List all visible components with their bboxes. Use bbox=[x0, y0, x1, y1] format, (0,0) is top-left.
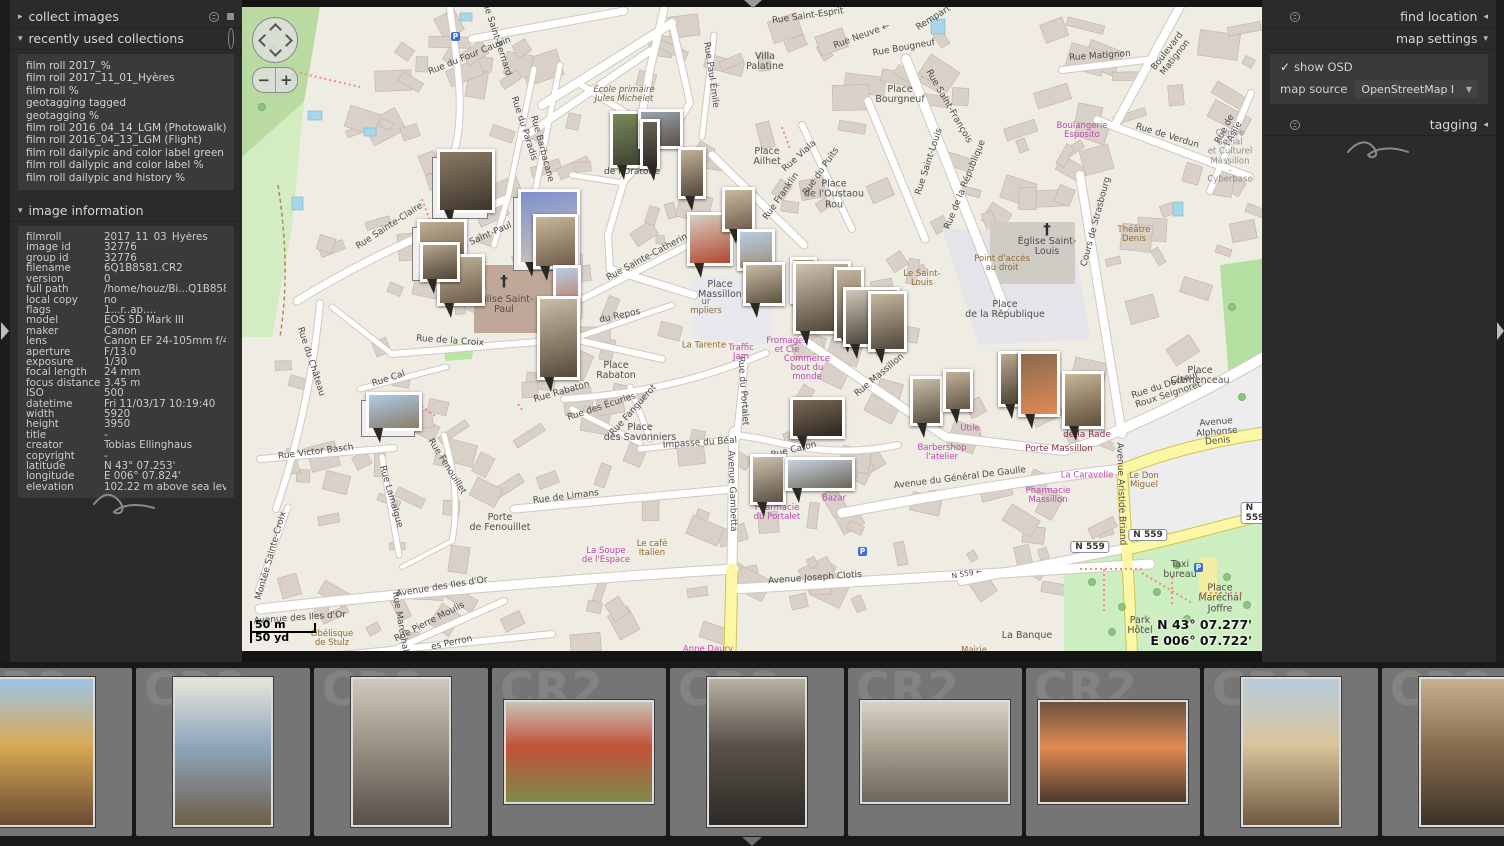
info-value: 500 bbox=[104, 388, 226, 398]
info-value: F/13.0 bbox=[104, 347, 226, 357]
info-value: EOS 5D Mark III bbox=[104, 315, 226, 325]
collect-images-header[interactable]: ▸ collect images bbox=[10, 6, 242, 28]
filmstrip-thumbnail-cell[interactable]: CR2 bbox=[670, 668, 844, 836]
checkbox-checked-icon[interactable]: ✓ bbox=[1280, 60, 1290, 74]
photo-marker[interactable] bbox=[420, 242, 460, 282]
marker-tail bbox=[444, 303, 454, 318]
info-key: aperture bbox=[26, 347, 104, 357]
info-value: - bbox=[104, 451, 226, 461]
pan-right-icon[interactable] bbox=[280, 34, 293, 47]
marker-tail bbox=[757, 502, 767, 517]
collection-item[interactable]: film roll % bbox=[26, 85, 226, 97]
marker-tail bbox=[427, 279, 437, 294]
info-key: datetime bbox=[26, 399, 104, 409]
thumbnail-photo[interactable] bbox=[504, 700, 654, 804]
presets-icon[interactable] bbox=[1290, 120, 1300, 130]
info-key: copyright bbox=[26, 451, 104, 461]
info-key: creator bbox=[26, 440, 104, 450]
collapse-left-panel-arrow[interactable] bbox=[1, 322, 9, 340]
photo-marker[interactable] bbox=[868, 291, 907, 352]
info-value: 24 mm bbox=[104, 367, 226, 377]
info-key: full path bbox=[26, 284, 104, 294]
info-key: lens bbox=[26, 336, 104, 346]
info-key: filename bbox=[26, 263, 104, 273]
photo-marker[interactable] bbox=[910, 376, 943, 426]
info-key: title bbox=[26, 430, 104, 440]
info-value: 1/30 bbox=[104, 357, 226, 367]
photo-marker[interactable] bbox=[943, 369, 973, 412]
info-value: 2017_11_03_Hyères bbox=[104, 232, 226, 242]
church-cross-icon: † bbox=[500, 272, 508, 290]
collection-item[interactable]: film roll 2016_04_14_LGM (Photowalk) bbox=[26, 122, 226, 134]
marker-tail bbox=[1025, 414, 1035, 429]
photo-marker[interactable] bbox=[790, 397, 845, 439]
collection-item[interactable]: film roll dailypic and history % bbox=[26, 172, 226, 184]
find-location-label: find location bbox=[1400, 9, 1477, 24]
photo-marker[interactable] bbox=[678, 147, 706, 199]
info-value: E 006° 07.824' bbox=[104, 471, 226, 481]
info-value: Canon EF 24-105mm f/4L IS bbox=[104, 336, 226, 346]
photo-marker[interactable] bbox=[1018, 351, 1060, 417]
info-value: 32776 bbox=[104, 242, 226, 252]
photo-markers-layer bbox=[242, 7, 1262, 651]
marker-tail bbox=[1005, 404, 1015, 419]
filmstrip-thumbnail-cell[interactable]: CR2 bbox=[0, 668, 132, 836]
marker-tail bbox=[792, 488, 802, 503]
recent-collections-header[interactable]: ▾ recently used collections bbox=[10, 28, 242, 50]
presets-icon[interactable] bbox=[1290, 12, 1300, 22]
photo-marker[interactable] bbox=[750, 454, 786, 505]
thumbnail-photo[interactable] bbox=[1419, 677, 1504, 827]
marker-tail bbox=[950, 409, 960, 424]
info-key: latitude bbox=[26, 461, 104, 471]
filmstrip-thumbnail-cell[interactable]: CR2 bbox=[1382, 668, 1504, 836]
coordinate-longitude: E 006° 07.722' bbox=[1150, 633, 1252, 649]
zoom-out-button[interactable]: − bbox=[253, 68, 275, 92]
info-key: longitude bbox=[26, 471, 104, 481]
filmstrip: CR2CR2CR2CR2CR2CR2CR2CR2CR2 bbox=[0, 662, 1504, 846]
expander-icon: ▾ bbox=[18, 206, 23, 216]
marker-tail bbox=[850, 344, 860, 359]
marker-tail bbox=[685, 196, 695, 211]
zoom-in-button[interactable]: + bbox=[275, 68, 298, 92]
filmstrip-thumbnail-cell[interactable]: CR2 bbox=[848, 668, 1022, 836]
collapse-filmstrip-arrow[interactable] bbox=[742, 837, 762, 846]
thumbnail-photo[interactable] bbox=[0, 677, 95, 827]
marker-tail bbox=[647, 166, 657, 181]
photo-marker[interactable] bbox=[537, 296, 580, 380]
filmstrip-thumbnail-cell[interactable]: CR2 bbox=[492, 668, 666, 836]
marker-tail bbox=[540, 266, 550, 281]
thumbnail-photo[interactable] bbox=[860, 700, 1010, 804]
parking-icon: P bbox=[1194, 563, 1203, 572]
filmstrip-thumbnail-cell[interactable]: CR2 bbox=[136, 668, 310, 836]
info-key: focus distance bbox=[26, 378, 104, 388]
info-key: ISO bbox=[26, 388, 104, 398]
presets-icon[interactable] bbox=[209, 12, 219, 22]
info-key: height bbox=[26, 419, 104, 429]
filmstrip-thumbnail-cell[interactable]: CR2 bbox=[1204, 668, 1378, 836]
expander-icon: ▾ bbox=[18, 34, 23, 44]
marker-tail bbox=[797, 436, 807, 451]
recent-collections-label: recently used collections bbox=[29, 31, 184, 46]
marker-tail bbox=[694, 263, 704, 278]
show-osd-label: show OSD bbox=[1294, 60, 1353, 74]
collection-item[interactable]: film roll dailypic and color label % bbox=[26, 159, 226, 171]
marker-tail bbox=[617, 165, 627, 180]
marker-tail bbox=[373, 428, 383, 443]
info-key: filmroll bbox=[26, 232, 104, 242]
marker-tail bbox=[917, 423, 927, 438]
collection-item[interactable]: film roll 2017_% bbox=[26, 60, 226, 72]
pan-up-icon[interactable] bbox=[269, 23, 282, 36]
info-key: version bbox=[26, 274, 104, 284]
module-icon[interactable] bbox=[227, 13, 234, 20]
info-value: 1...r..ap.... bbox=[104, 305, 226, 315]
image-information-header[interactable]: ▾ image information bbox=[10, 200, 242, 222]
church-cross-icon: † bbox=[1043, 220, 1051, 238]
collect-images-label: collect images bbox=[29, 9, 119, 24]
info-key: group id bbox=[26, 253, 104, 263]
info-key: local copy bbox=[26, 295, 104, 305]
marker-tail bbox=[750, 303, 760, 318]
pan-down-icon[interactable] bbox=[269, 44, 282, 57]
collapse-top-panel-arrow[interactable] bbox=[744, 0, 762, 8]
filmstrip-thumbnail-cell[interactable]: CR2 bbox=[1026, 668, 1200, 836]
thumbnail-photo[interactable] bbox=[1241, 677, 1341, 827]
info-key: flags bbox=[26, 305, 104, 315]
collection-item[interactable]: film roll dailypic and color label green bbox=[26, 147, 226, 159]
info-value: 6Q1B8581.CR2 bbox=[104, 263, 226, 273]
find-location-header[interactable]: find location ◂ bbox=[1262, 6, 1496, 28]
photo-marker[interactable] bbox=[785, 457, 855, 491]
map-view[interactable]: Rue Saint-EspritRue Neuve ←RempartRue Bo… bbox=[242, 7, 1262, 651]
thumbnail-photo[interactable] bbox=[1038, 700, 1188, 804]
photo-marker[interactable] bbox=[366, 392, 422, 431]
marker-tail bbox=[800, 331, 810, 346]
info-value: N 43° 07.253' bbox=[104, 461, 226, 471]
thumbnail-photo[interactable] bbox=[351, 677, 451, 827]
tagging-label: tagging bbox=[1430, 117, 1478, 132]
map-zoom-control[interactable]: − + bbox=[252, 67, 298, 93]
expander-icon: ▾ bbox=[1483, 34, 1488, 44]
photo-marker[interactable] bbox=[1062, 371, 1104, 429]
info-value: Tobias Ellinghaus bbox=[104, 440, 226, 450]
map-source-label: map source bbox=[1280, 82, 1347, 96]
collection-item[interactable]: geotagging % bbox=[26, 110, 226, 122]
recent-collections-list: film roll 2017_%film roll 2017_11_01_Hyè… bbox=[18, 54, 234, 190]
image-information-label: image information bbox=[29, 203, 144, 218]
map-settings-label: map settings bbox=[1396, 31, 1478, 46]
collection-item[interactable]: film roll 2016_04_13_LGM (Flight) bbox=[26, 134, 226, 146]
info-key: width bbox=[26, 409, 104, 419]
info-key: focal length bbox=[26, 367, 104, 377]
info-value: Canon bbox=[104, 326, 226, 336]
pan-left-icon[interactable] bbox=[258, 34, 271, 47]
decorative-squiggle bbox=[90, 486, 160, 522]
marker-tail bbox=[544, 377, 554, 392]
info-key: model bbox=[26, 315, 104, 325]
info-value: - bbox=[104, 430, 226, 440]
info-value: /home/houz/Bi...Q1B8581.CR2 bbox=[104, 284, 226, 294]
photo-marker[interactable] bbox=[533, 214, 578, 269]
photo-marker[interactable] bbox=[743, 262, 785, 306]
map-scale-osd: 50 m 50 yd bbox=[250, 619, 330, 645]
presets-icon[interactable] bbox=[228, 28, 234, 49]
photo-marker[interactable] bbox=[437, 149, 495, 213]
info-value: 32776 bbox=[104, 253, 226, 263]
chevron-down-icon: ▼ bbox=[1466, 85, 1472, 94]
info-value: 5920 bbox=[104, 409, 226, 419]
marker-tail bbox=[1069, 426, 1079, 441]
decorative-squiggle bbox=[1344, 132, 1414, 168]
map-source-value: OpenStreetMap I bbox=[1361, 83, 1454, 96]
scale-metric: 50 m bbox=[255, 618, 286, 631]
left-panel: ▸ collect images ▾ recently used collect… bbox=[10, 0, 242, 662]
info-value: no bbox=[104, 295, 226, 305]
parking-icon: P bbox=[451, 32, 460, 41]
scale-imperial: 50 yd bbox=[255, 631, 289, 644]
info-value: 0 bbox=[104, 274, 226, 284]
info-key: exposure bbox=[26, 357, 104, 367]
filmstrip-thumbnail-cell[interactable]: CR2 bbox=[314, 668, 488, 836]
coordinate-latitude: N 43° 07.277' bbox=[1150, 617, 1252, 633]
info-value: 3.45 m bbox=[104, 378, 226, 388]
right-panel: find location ◂ map settings ▾ ✓ show OS… bbox=[1262, 0, 1496, 662]
photo-marker[interactable] bbox=[722, 187, 755, 232]
map-settings-header[interactable]: map settings ▾ bbox=[1262, 28, 1496, 50]
expander-icon: ▸ bbox=[18, 12, 23, 22]
map-coordinates-osd: N 43° 07.277' E 006° 07.722' bbox=[1150, 617, 1252, 648]
info-key: image id bbox=[26, 242, 104, 252]
thumbnail-photo[interactable] bbox=[707, 677, 807, 827]
map-pan-control[interactable] bbox=[252, 17, 298, 63]
map-source-dropdown[interactable]: OpenStreetMap I ▼ bbox=[1355, 80, 1478, 98]
collection-item[interactable]: geotagging tagged bbox=[26, 97, 226, 109]
collapse-right-panel-arrow[interactable] bbox=[1497, 322, 1504, 340]
parking-icon: P bbox=[858, 547, 867, 556]
info-key: maker bbox=[26, 326, 104, 336]
info-value: Fri 11/03/17 10:19:40 bbox=[104, 399, 226, 409]
expander-icon: ◂ bbox=[1483, 120, 1488, 130]
info-value: 3950 bbox=[104, 419, 226, 429]
image-information-table: filmroll2017_11_03_Hyèresimage id32776gr… bbox=[18, 226, 234, 498]
photo-marker[interactable] bbox=[640, 119, 660, 169]
thumbnail-photo[interactable] bbox=[173, 677, 273, 827]
marker-tail bbox=[875, 349, 885, 364]
collection-item[interactable]: film roll 2017_11_01_Hyères bbox=[26, 72, 226, 84]
show-osd-row[interactable]: ✓ show OSD bbox=[1274, 60, 1484, 80]
expander-icon: ◂ bbox=[1483, 12, 1488, 22]
